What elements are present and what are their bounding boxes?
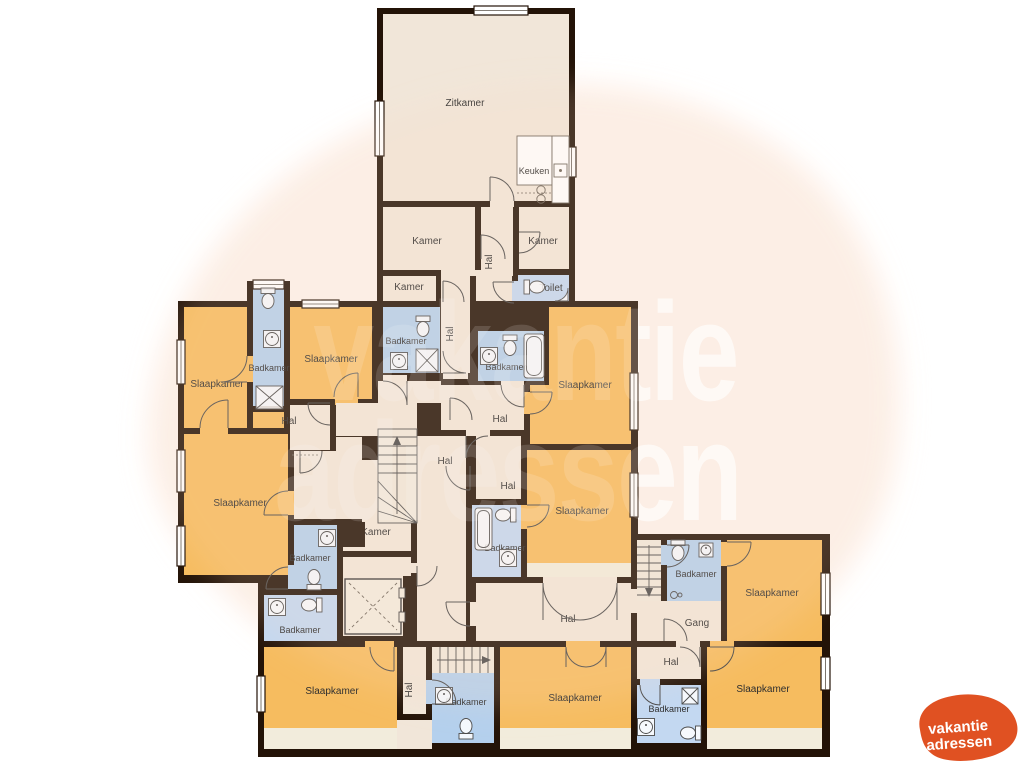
svg-text:Slaapkamer: Slaapkamer xyxy=(305,686,359,697)
svg-text:adressen: adressen xyxy=(274,393,741,550)
svg-text:Slaapkamer: Slaapkamer xyxy=(736,684,790,695)
svg-text:Badkamer: Badkamer xyxy=(648,704,689,714)
